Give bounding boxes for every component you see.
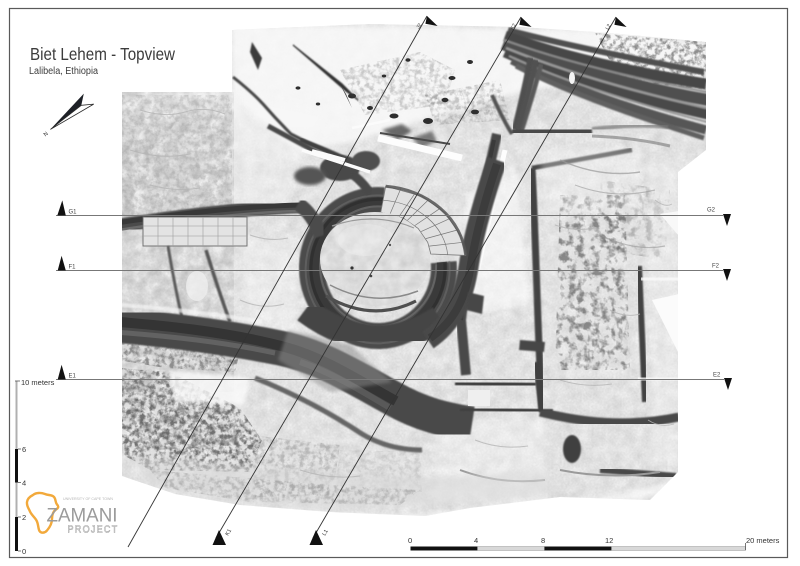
svg-text:20 meters: 20 meters (746, 536, 780, 545)
svg-text:K1: K1 (225, 528, 234, 537)
svg-text:0: 0 (408, 536, 412, 545)
svg-text:0: 0 (22, 547, 26, 556)
svg-text:Biet Lehem - Topview: Biet Lehem - Topview (30, 44, 175, 64)
svg-text:8: 8 (541, 536, 545, 545)
svg-text:4: 4 (474, 536, 478, 545)
svg-text:PROJECT: PROJECT (68, 524, 119, 536)
svg-text:10 meters: 10 meters (21, 378, 55, 387)
svg-text:F1: F1 (69, 265, 77, 271)
svg-text:2: 2 (22, 513, 26, 522)
svg-text:UNIVERSITY OF CAPE TOWN: UNIVERSITY OF CAPE TOWN (63, 497, 113, 501)
svg-text:F2: F2 (712, 264, 720, 270)
svg-text:E1: E1 (69, 374, 77, 380)
svg-text:Lalibela, Ethiopia: Lalibela, Ethiopia (29, 66, 98, 77)
svg-text:6: 6 (22, 445, 26, 454)
svg-text:4: 4 (22, 479, 26, 488)
svg-text:N: N (43, 131, 50, 138)
svg-text:E2: E2 (713, 373, 721, 379)
svg-text:G1: G1 (69, 210, 78, 216)
svg-text:L1: L1 (322, 529, 330, 537)
svg-text:G2: G2 (707, 208, 716, 214)
svg-text:12: 12 (605, 536, 613, 545)
